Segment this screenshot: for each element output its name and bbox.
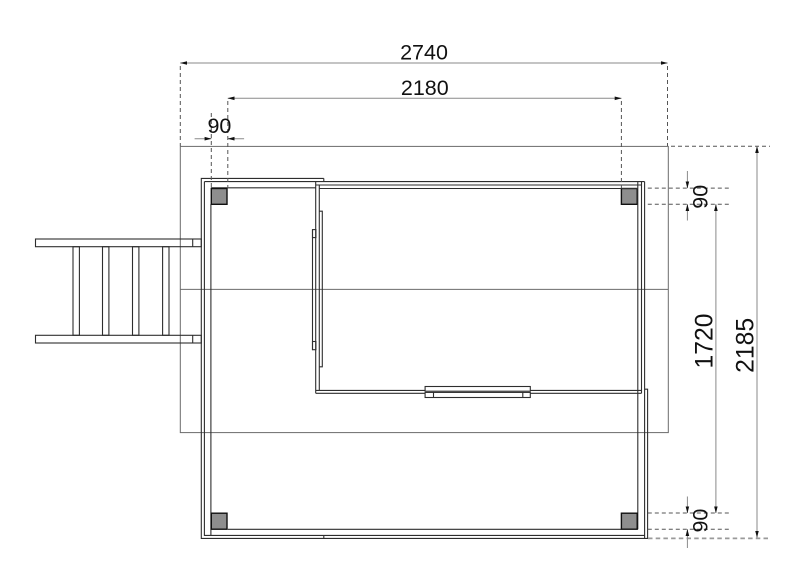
svg-text:90: 90 [689, 509, 713, 533]
svg-text:90: 90 [207, 114, 231, 138]
svg-text:2185: 2185 [733, 318, 760, 373]
svg-text:1720: 1720 [692, 314, 719, 369]
svg-text:90: 90 [689, 185, 713, 209]
svg-text:2740: 2740 [400, 41, 448, 65]
svg-text:2180: 2180 [401, 76, 449, 100]
